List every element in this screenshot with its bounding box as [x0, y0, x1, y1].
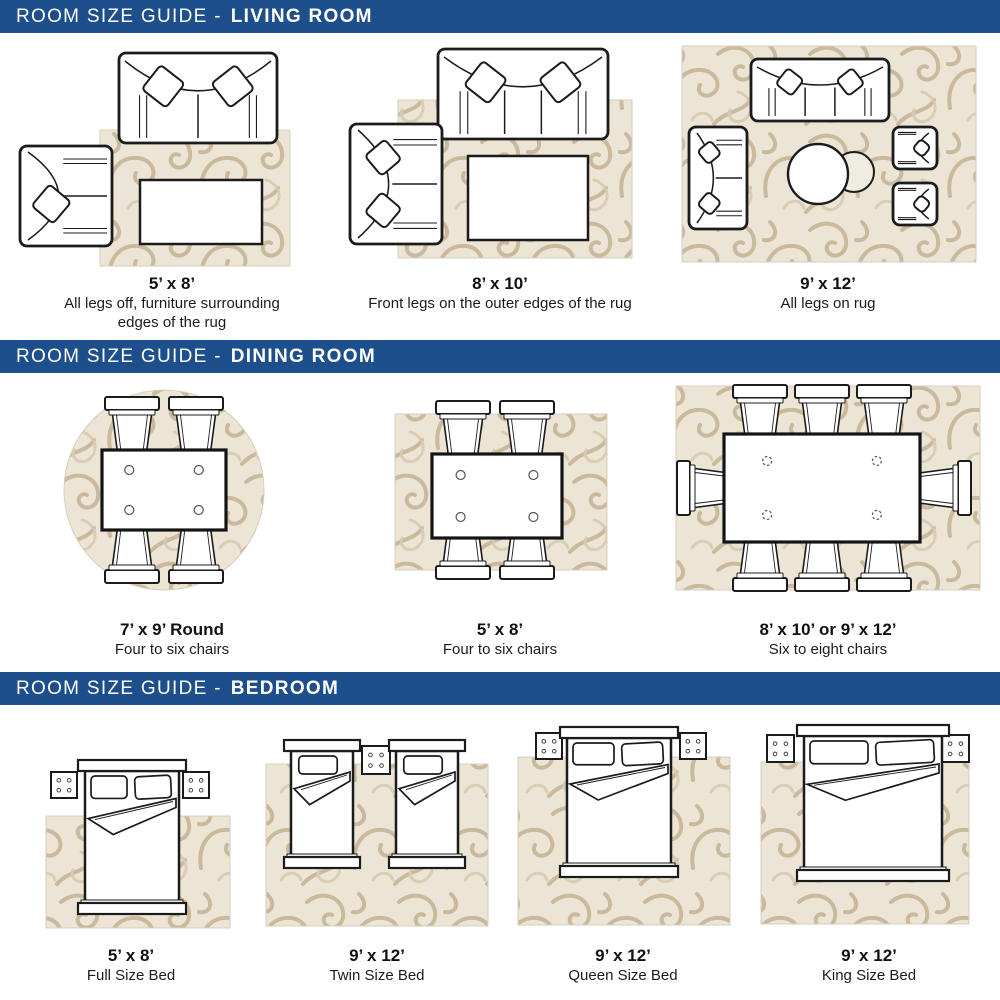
figure-caption: 5’ x 8’Full Size Bed — [87, 945, 175, 986]
placement-description: All legs on rug — [780, 295, 875, 314]
figure-dining-7x9-round: 7’ x 9’ RoundFour to six chairs — [8, 378, 336, 660]
header-room-name: BEDROOM — [231, 678, 339, 700]
figure-caption: 5’ x 8’Four to six chairs — [443, 619, 557, 660]
rug-size-label: 7’ x 9’ Round — [115, 619, 229, 641]
figure-bedroom-queen: 9’ x 12’Queen Size Bed — [500, 710, 746, 986]
figure-caption: 8’ x 10’Front legs on the outer edges of… — [368, 273, 632, 314]
placement-description: Full Size Bed — [87, 967, 175, 986]
header-room-name: LIVING ROOM — [231, 6, 373, 28]
illustration-bedroom-twin — [257, 710, 497, 942]
illustration-bedroom-queen — [503, 710, 743, 942]
header-prefix: ROOM SIZE GUIDE - — [16, 678, 222, 700]
placement-description: King Size Bed — [822, 967, 916, 986]
figure-bedroom-full: 5’ x 8’Full Size Bed — [8, 710, 254, 986]
illustration-dining-8x10-9x12 — [668, 378, 988, 616]
rug-size-label: 9’ x 12’ — [822, 945, 916, 967]
illustration-living-5x8 — [12, 38, 332, 270]
header-prefix: ROOM SIZE GUIDE - — [16, 346, 222, 368]
figure-caption: 5’ x 8’All legs off, furniture surroundi… — [47, 273, 297, 333]
figure-living-9x12: 9’ x 12’All legs on rug — [664, 38, 992, 314]
figure-bedroom-twin: 9’ x 12’Twin Size Bed — [254, 710, 500, 986]
illustration-dining-7x9-round — [12, 378, 332, 616]
section-header-bedroom: ROOM SIZE GUIDE - BEDROOM — [0, 672, 1000, 705]
illustration-bedroom-king — [749, 710, 989, 942]
illustration-living-8x10 — [340, 38, 660, 270]
header-room-name: DINING ROOM — [231, 346, 376, 368]
living-room-figures-row: 5’ x 8’All legs off, furniture surroundi… — [0, 33, 1000, 333]
section-header-dining-room: ROOM SIZE GUIDE - DINING ROOM — [0, 340, 1000, 373]
figure-caption: 8’ x 10’ or 9’ x 12’Six to eight chairs — [759, 619, 896, 660]
figure-caption: 9’ x 12’Queen Size Bed — [568, 945, 677, 986]
section-living-room: ROOM SIZE GUIDE - LIVING ROOM 5’ x 8’All… — [0, 0, 1000, 340]
rug-size-label: 9’ x 12’ — [780, 273, 875, 295]
dining-room-figures-row: 7’ x 9’ RoundFour to six chairs 5’ x 8’F… — [0, 373, 1000, 660]
section-bedroom: ROOM SIZE GUIDE - BEDROOM 5’ x 8’Full Si… — [0, 672, 1000, 1000]
placement-description: All legs off, furniture surrounding edge… — [47, 295, 297, 333]
figure-living-5x8: 5’ x 8’All legs off, furniture surroundi… — [8, 38, 336, 333]
figure-caption: 9’ x 12’All legs on rug — [780, 273, 875, 314]
rug-size-label: 5’ x 8’ — [87, 945, 175, 967]
illustration-bedroom-full — [11, 710, 251, 942]
placement-description: Twin Size Bed — [329, 967, 424, 986]
placement-description: Four to six chairs — [115, 641, 229, 660]
illustration-dining-5x8 — [340, 378, 660, 616]
room-size-guide-infographic: ROOM SIZE GUIDE - LIVING ROOM 5’ x 8’All… — [0, 0, 1000, 1000]
rug-size-label: 9’ x 12’ — [329, 945, 424, 967]
illustration-living-9x12 — [668, 38, 988, 270]
rug-size-label: 8’ x 10’ or 9’ x 12’ — [759, 619, 896, 641]
figure-caption: 7’ x 9’ RoundFour to six chairs — [115, 619, 229, 660]
rug-size-label: 9’ x 12’ — [568, 945, 677, 967]
section-dining-room: ROOM SIZE GUIDE - DINING ROOM 7’ x 9’ Ro… — [0, 340, 1000, 672]
rug-size-label: 5’ x 8’ — [47, 273, 297, 295]
section-header-living-room: ROOM SIZE GUIDE - LIVING ROOM — [0, 0, 1000, 33]
figure-dining-8x10-9x12: 8’ x 10’ or 9’ x 12’Six to eight chairs — [664, 378, 992, 660]
figure-caption: 9’ x 12’Twin Size Bed — [329, 945, 424, 986]
bedroom-figures-row: 5’ x 8’Full Size Bed9’ x 12’Twin Size Be… — [0, 705, 1000, 986]
figure-caption: 9’ x 12’King Size Bed — [822, 945, 916, 986]
rug-size-label: 8’ x 10’ — [368, 273, 632, 295]
figure-dining-5x8: 5’ x 8’Four to six chairs — [336, 378, 664, 660]
placement-description: Front legs on the outer edges of the rug — [368, 295, 632, 314]
placement-description: Queen Size Bed — [568, 967, 677, 986]
figure-bedroom-king: 9’ x 12’King Size Bed — [746, 710, 992, 986]
placement-description: Four to six chairs — [443, 641, 557, 660]
placement-description: Six to eight chairs — [759, 641, 896, 660]
header-prefix: ROOM SIZE GUIDE - — [16, 6, 222, 28]
figure-living-8x10: 8’ x 10’Front legs on the outer edges of… — [336, 38, 664, 314]
rug-size-label: 5’ x 8’ — [443, 619, 557, 641]
